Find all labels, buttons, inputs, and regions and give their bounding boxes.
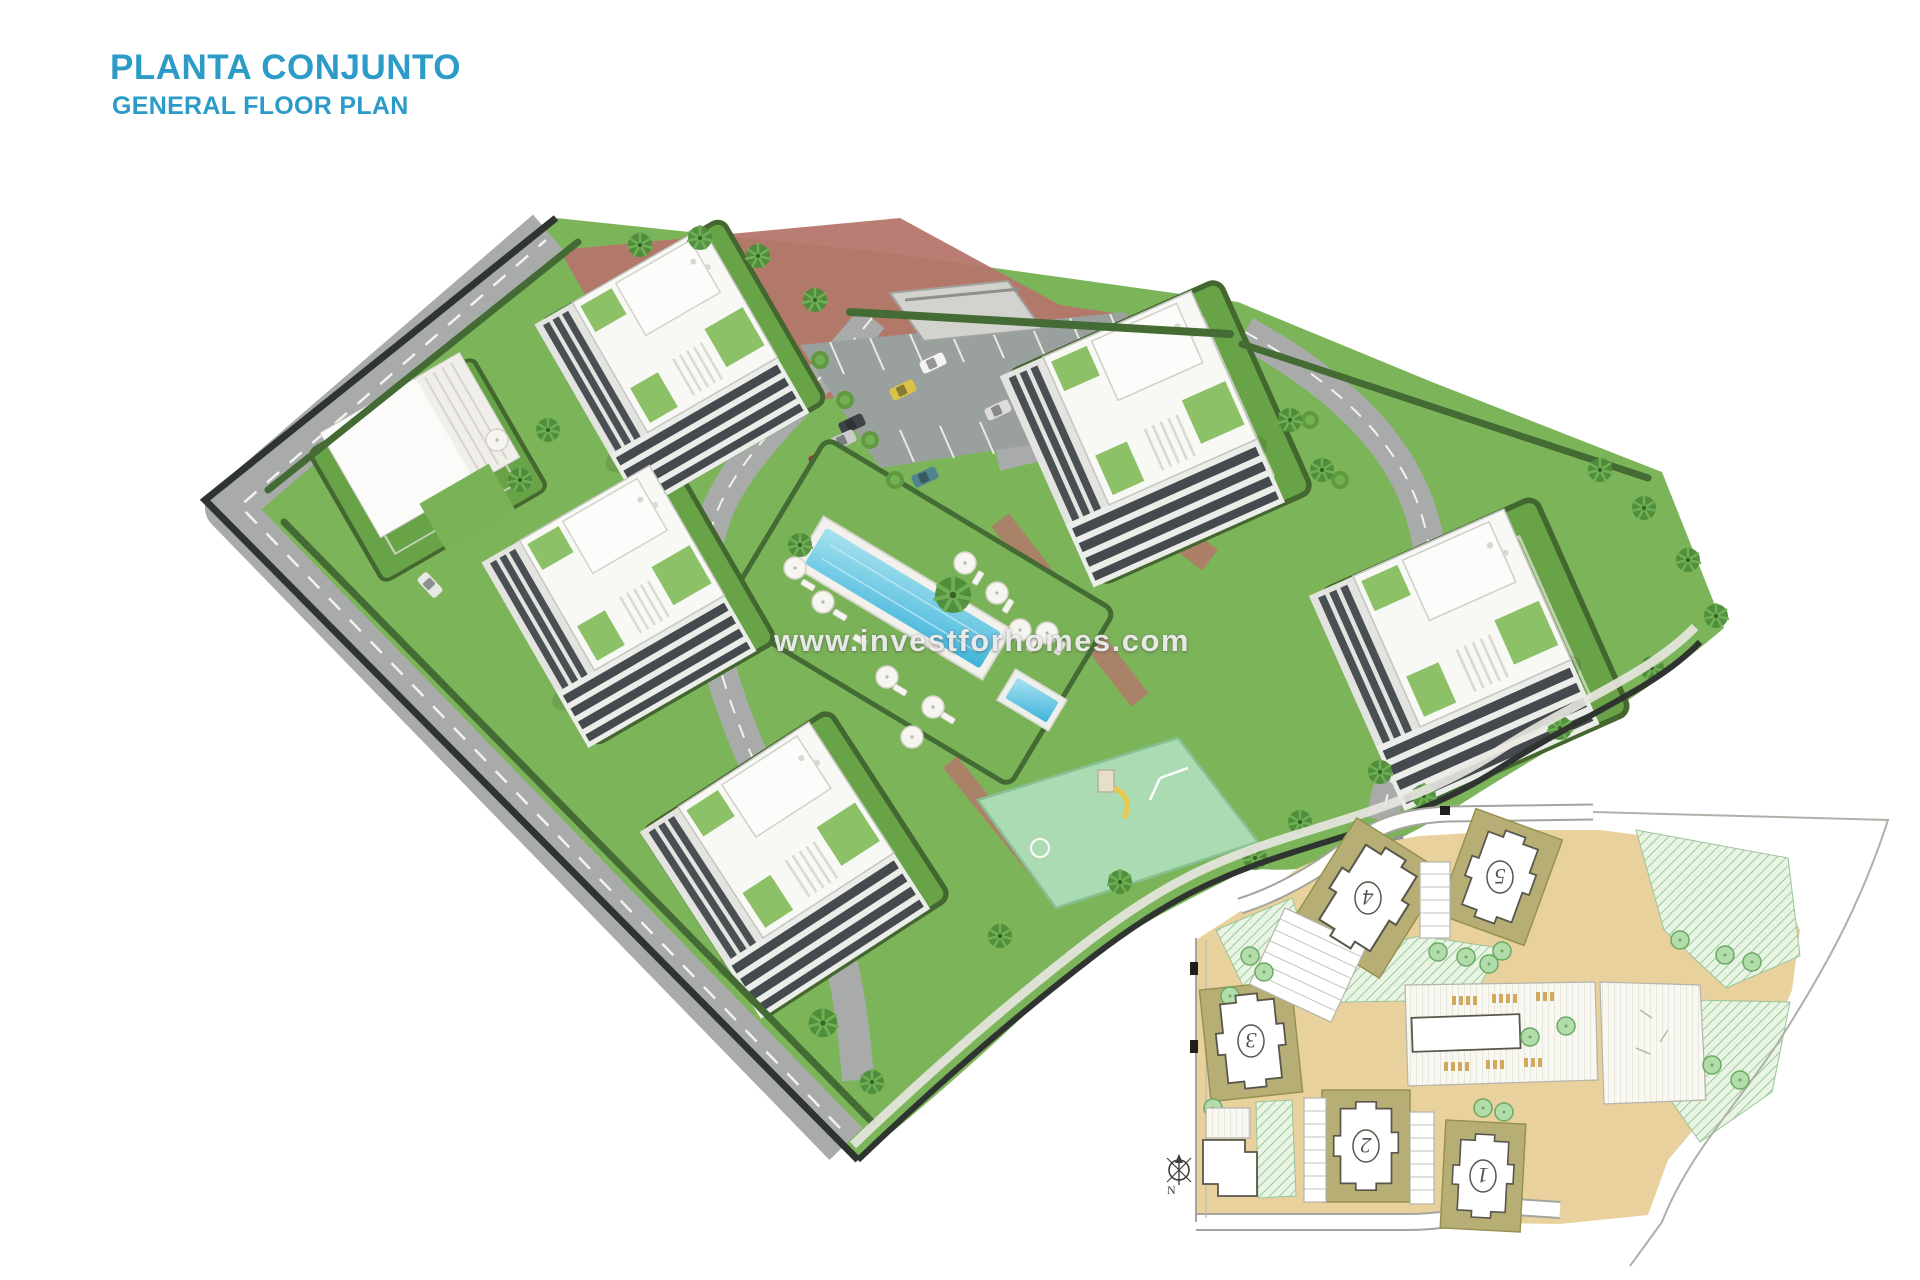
inset-site-plan: 4 5 3 2 1	[1167, 806, 1888, 1266]
inset-clubhouse-deck	[1206, 1108, 1250, 1138]
building-number-4: 4	[1363, 885, 1374, 910]
inset-pool	[1411, 1014, 1520, 1052]
building-number-3: 3	[1246, 1028, 1258, 1053]
compass-label: N	[1167, 1183, 1176, 1197]
watermark: www.investforhomes.com	[774, 623, 1190, 659]
building-number-1: 1	[1478, 1163, 1489, 1188]
play-tower	[1098, 770, 1114, 792]
building-number-2: 2	[1361, 1133, 1372, 1158]
building-number-5: 5	[1495, 864, 1506, 889]
inset-playground	[1600, 982, 1706, 1104]
inset-gate-marker	[1440, 806, 1450, 815]
page-background: PLANTA CONJUNTO GENERAL FLOOR PLAN	[0, 0, 1920, 1280]
compass-icon: N	[1167, 1154, 1191, 1197]
clubhouse-umbrella	[486, 429, 508, 451]
